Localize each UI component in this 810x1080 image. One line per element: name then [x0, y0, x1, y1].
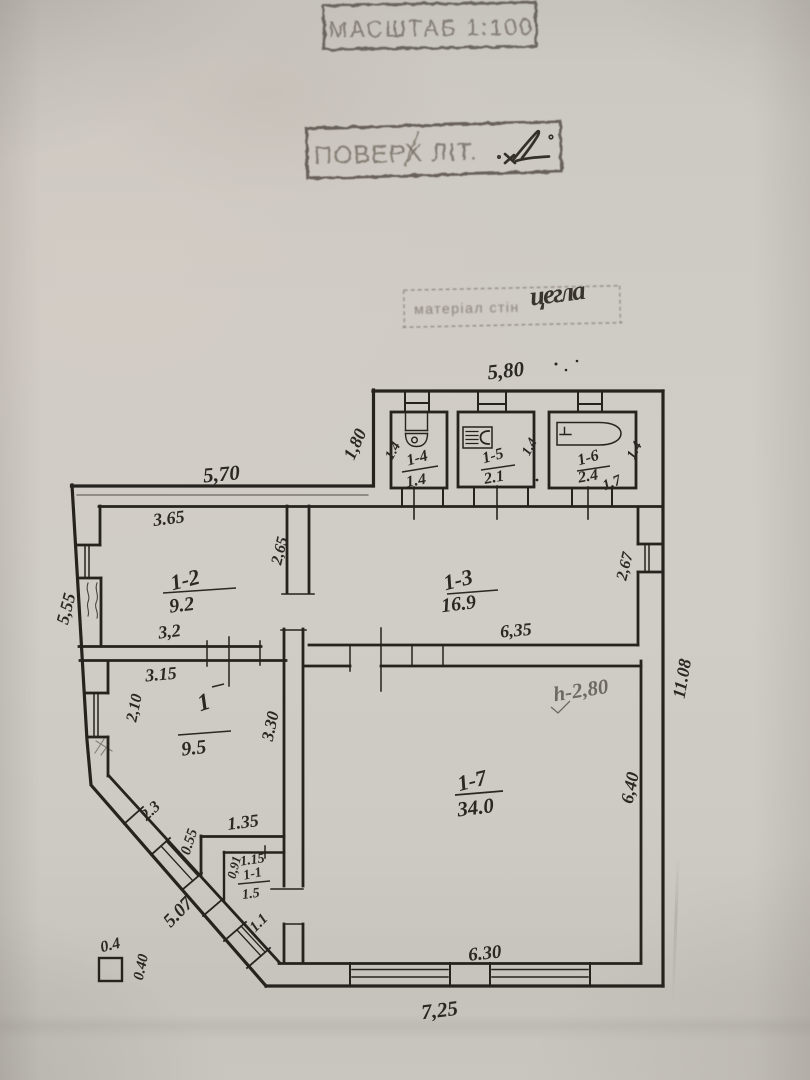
svg-text:16.9: 16.9	[440, 591, 477, 617]
svg-text:3.15: 3.15	[143, 663, 177, 686]
svg-text:5,55: 5,55	[52, 591, 79, 627]
svg-text:0.4: 0.4	[99, 935, 123, 956]
svg-text:1-3: 1-3	[441, 564, 476, 595]
svg-text:3.65: 3.65	[151, 506, 186, 530]
svg-text:2,67: 2,67	[613, 550, 637, 583]
svg-text:1.4: 1.4	[519, 436, 540, 458]
svg-text:3.30: 3.30	[258, 709, 283, 744]
svg-text:1,80: 1,80	[339, 426, 370, 463]
svg-text:9.5: 9.5	[180, 736, 207, 761]
svg-text:ПОВЕРХ ЛІТ.: ПОВЕРХ ЛІТ.	[314, 138, 478, 171]
svg-text:1-6: 1-6	[576, 447, 601, 469]
svg-text:5,80: 5,80	[486, 357, 526, 385]
svg-text:МАСШТАБ 1:100: МАСШТАБ 1:100	[328, 14, 534, 43]
svg-text:1-7: 1-7	[455, 764, 490, 796]
svg-text:2.1: 2.1	[482, 468, 506, 488]
svg-text:1: 1	[194, 689, 213, 717]
svg-text:1-1: 1-1	[242, 865, 263, 884]
svg-text:11.08: 11.08	[669, 657, 696, 699]
svg-text:34.0: 34.0	[455, 793, 496, 821]
svg-text:цегла: цегла	[528, 275, 587, 312]
svg-text:1.4: 1.4	[383, 440, 404, 462]
svg-text:3,2: 3,2	[156, 620, 182, 643]
svg-text:0.55: 0.55	[178, 826, 201, 856]
svg-text:9.2: 9.2	[168, 593, 195, 618]
svg-text:6.30: 6.30	[467, 941, 503, 965]
svg-text:6,35: 6,35	[499, 619, 532, 642]
svg-text:6,40: 6,40	[617, 770, 643, 805]
svg-text:2,10: 2,10	[123, 692, 146, 724]
svg-text:1.35: 1.35	[226, 810, 260, 834]
svg-text:5,70: 5,70	[202, 460, 241, 487]
svg-text:1-4: 1-4	[405, 447, 430, 469]
svg-text:1,7: 1,7	[600, 472, 624, 494]
svg-text:0,91: 0,91	[224, 854, 244, 880]
svg-text:2.3: 2.3	[137, 798, 164, 825]
svg-text:1.4: 1.4	[624, 439, 645, 461]
svg-text:5.07: 5.07	[159, 892, 198, 932]
svg-text:7,25: 7,25	[420, 996, 459, 1024]
svg-text:матеріал стін: матеріал стін	[414, 299, 520, 317]
svg-text:0.40: 0.40	[131, 952, 152, 981]
svg-text:1.5: 1.5	[241, 886, 260, 903]
svg-text:2.4: 2.4	[576, 466, 600, 486]
svg-text:h-2,80: h-2,80	[552, 674, 611, 706]
svg-text:1.4: 1.4	[405, 471, 428, 491]
